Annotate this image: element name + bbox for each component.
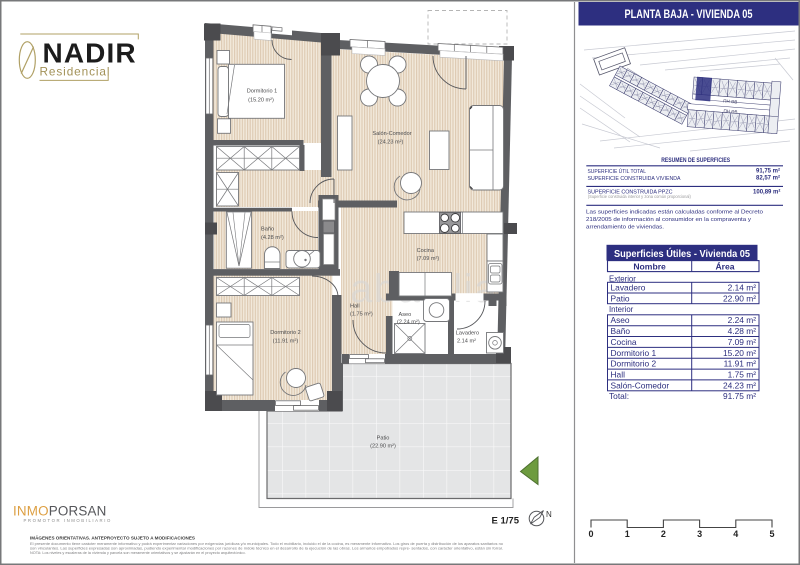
svg-text:Área: Área bbox=[715, 261, 734, 271]
svg-text:Cocina: Cocina bbox=[611, 337, 637, 347]
svg-text:2.14 m²: 2.14 m² bbox=[457, 339, 476, 345]
svg-text:Dormitorio 1: Dormitorio 1 bbox=[247, 89, 277, 95]
svg-text:Dormitorio 1: Dormitorio 1 bbox=[611, 348, 657, 358]
svg-text:1.75 m²: 1.75 m² bbox=[728, 370, 757, 380]
svg-text:2.14 m²: 2.14 m² bbox=[728, 283, 757, 293]
svg-text:Superficies Útiles - Vivienda: Superficies Útiles - Vivienda 05 bbox=[614, 247, 750, 260]
svg-text:2.24 m²: 2.24 m² bbox=[728, 315, 757, 325]
svg-text:(24.23 m²): (24.23 m²) bbox=[378, 140, 404, 146]
svg-text:Total:: Total: bbox=[609, 391, 629, 401]
svg-text:22.90 m²: 22.90 m² bbox=[723, 293, 756, 303]
svg-text:Cocina: Cocina bbox=[417, 248, 435, 254]
svg-text:(1.75 m²): (1.75 m²) bbox=[350, 312, 373, 318]
svg-text:218/2005 de información al con: 218/2005 de información al consumidor en… bbox=[586, 217, 751, 223]
svg-text:1: 1 bbox=[625, 529, 630, 539]
svg-text:11.91 m²: 11.91 m² bbox=[724, 359, 757, 369]
svg-text:PLANTA BAJA - VIVIENDA 05: PLANTA BAJA - VIVIENDA 05 bbox=[625, 9, 753, 21]
svg-text:Hall: Hall bbox=[611, 370, 626, 380]
svg-text:Lavadero: Lavadero bbox=[611, 283, 646, 293]
svg-text:0: 0 bbox=[588, 529, 593, 539]
svg-text:(15.20 m²): (15.20 m²) bbox=[248, 98, 274, 104]
svg-text:Lavadero: Lavadero bbox=[456, 331, 479, 337]
svg-text:IMÁGENES ORIENTATIVAS. ANTEPRO: IMÁGENES ORIENTATIVAS. ANTEPROYECTO SUJE… bbox=[30, 535, 195, 541]
svg-text:PROMOTOR INMOBILIARIO: PROMOTOR INMOBILIARIO bbox=[24, 518, 112, 523]
svg-text:SUPERFICIE CONSTRUIDA VIVIENDA: SUPERFICIE CONSTRUIDA VIVIENDA bbox=[588, 176, 681, 182]
svg-text:SUPERFICIE ÚTIL TOTAL: SUPERFICIE ÚTIL TOTAL bbox=[588, 168, 647, 175]
svg-text:Dormitorio 2: Dormitorio 2 bbox=[611, 359, 657, 369]
svg-text:2: 2 bbox=[661, 529, 666, 539]
svg-text:son vinculantes. Las superfici: son vinculantes. Las superficies expresa… bbox=[30, 547, 503, 551]
svg-text:Residencial: Residencial bbox=[40, 64, 111, 78]
svg-text:El presente documento tiene ca: El presente documento tiene carácter mer… bbox=[30, 542, 503, 546]
svg-text:Aseo: Aseo bbox=[399, 312, 412, 318]
svg-text:Dormitorio 2: Dormitorio 2 bbox=[270, 330, 300, 336]
svg-text:(22.90 m²): (22.90 m²) bbox=[370, 444, 396, 450]
svg-text:Las superficies indicadas está: Las superficies indicadas están calculad… bbox=[586, 210, 764, 216]
svg-text:91,75 m²: 91,75 m² bbox=[756, 168, 780, 175]
svg-text:(4.28 m²): (4.28 m²) bbox=[261, 235, 284, 241]
svg-text:N: N bbox=[546, 510, 552, 519]
svg-text:24.23 m²: 24.23 m² bbox=[723, 380, 756, 390]
svg-text:Nombre: Nombre bbox=[633, 261, 666, 271]
svg-text:Aseo: Aseo bbox=[611, 315, 630, 325]
svg-text:(2.24 m²): (2.24 m²) bbox=[397, 320, 420, 326]
svg-text:(7.09 m²): (7.09 m²) bbox=[417, 256, 440, 262]
svg-text:E 1/75: E 1/75 bbox=[492, 516, 520, 527]
svg-text:Salón-Comedor: Salón-Comedor bbox=[372, 131, 411, 137]
svg-text:7.09 m²: 7.09 m² bbox=[728, 337, 757, 347]
svg-text:3: 3 bbox=[697, 529, 702, 539]
svg-text:Baño: Baño bbox=[261, 227, 274, 233]
svg-text:4.28 m²: 4.28 m² bbox=[728, 326, 757, 336]
svg-text:100,89 m²: 100,89 m² bbox=[753, 189, 780, 196]
svg-text:(Superficie construida interio: (Superficie construida interior y zona c… bbox=[588, 194, 692, 199]
svg-text:Interior: Interior bbox=[609, 305, 634, 314]
svg-text:Patio: Patio bbox=[377, 436, 390, 442]
svg-text:RESUMEN DE SUPERFICIES: RESUMEN DE SUPERFICIES bbox=[661, 157, 730, 164]
svg-text:Patio: Patio bbox=[611, 293, 630, 303]
svg-text:NOTA: Los niveles y escaleras: NOTA: Los niveles y escaleras de la vivi… bbox=[30, 551, 246, 555]
svg-text:4: 4 bbox=[733, 529, 738, 539]
svg-text:Salón-Comedor: Salón-Comedor bbox=[611, 380, 670, 390]
svg-text:Hall: Hall bbox=[350, 304, 360, 310]
svg-text:Baño: Baño bbox=[611, 326, 631, 336]
svg-text:INMOPORSAN: INMOPORSAN bbox=[13, 504, 107, 519]
svg-text:arrendamiento de viviendas.: arrendamiento de viviendas. bbox=[586, 225, 664, 231]
svg-text:82,57 m²: 82,57 m² bbox=[756, 174, 780, 181]
svg-text:(11.91 m²): (11.91 m²) bbox=[273, 339, 299, 345]
svg-text:5: 5 bbox=[769, 529, 774, 539]
svg-text:91.75 m²: 91.75 m² bbox=[723, 391, 756, 401]
svg-text:15.20 m²: 15.20 m² bbox=[723, 348, 756, 358]
